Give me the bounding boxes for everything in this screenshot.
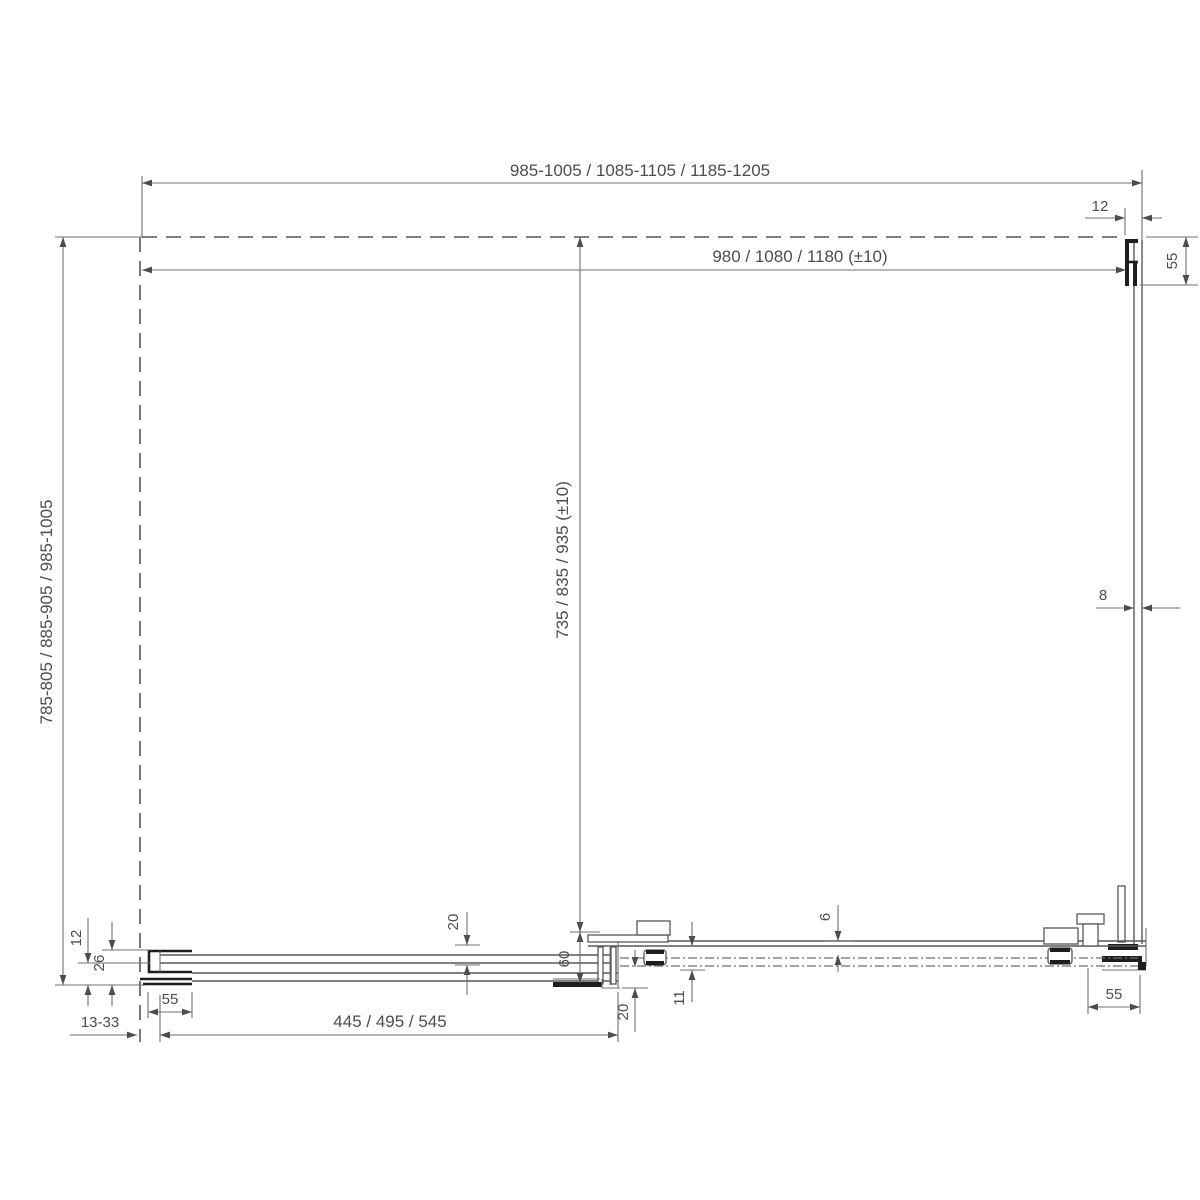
dim-fixed-panel-length: 445 / 495 / 545	[160, 992, 618, 1042]
dim-overall-depth: 785-805 / 885-905 / 985-1005	[37, 237, 63, 985]
shower-enclosure-plan-drawing: 985-1005 / 1085-1105 / 1185-1205 980 / 1…	[0, 0, 1200, 1200]
dim-label: 12	[68, 930, 85, 947]
dim-label: 985-1005 / 1085-1105 / 1185-1205	[510, 161, 770, 180]
dim-label: 12	[1092, 198, 1109, 215]
bracket-block	[637, 921, 670, 935]
dim-endcap-20: 20	[615, 950, 648, 1032]
dim-rail-gap-11: 11	[671, 922, 705, 1006]
dim-bottom-left-55: 55	[148, 991, 192, 1018]
dim-label: 55	[162, 991, 179, 1008]
dim-label: 980 / 1080 / 1180 (±10)	[712, 247, 887, 266]
stopper-stem	[1083, 924, 1098, 946]
dim-glass-width: 980 / 1080 / 1180 (±10)	[142, 247, 1126, 270]
wall-profile-top-right	[1125, 239, 1138, 286]
bottom-rail-section	[55, 914, 1146, 988]
bracket-plate	[588, 935, 668, 942]
dim-door-gap-6: 6	[817, 905, 852, 972]
dim-label: 8	[1099, 587, 1107, 604]
dimensions: 985-1005 / 1085-1105 / 1185-1205 980 / 1…	[37, 161, 1198, 1042]
dim-glass-thickness: 8	[1096, 587, 1180, 608]
right-fixed-panel	[1102, 239, 1146, 970]
bracket-post	[611, 947, 616, 984]
dim-overall-width: 985-1005 / 1085-1105 / 1185-1205	[142, 161, 1142, 183]
dim-label: 20	[445, 914, 462, 931]
dim-bottom-left-12: 12	[68, 918, 150, 1006]
panel-clamp-plate	[1118, 886, 1125, 942]
wall-outline	[55, 170, 1142, 1042]
dim-label: 13-33	[81, 1014, 119, 1031]
dim-label: 11	[671, 990, 688, 1006]
bracket-block	[1044, 928, 1078, 944]
dim-label: 55	[1106, 986, 1123, 1003]
dim-panel-offset-20: 20	[445, 912, 480, 995]
drawing-page: 985-1005 / 1085-1105 / 1185-1205 980 / 1…	[0, 0, 1200, 1200]
dim-label: 55	[1164, 253, 1181, 270]
dim-label: 20	[615, 1004, 632, 1021]
roller-bracket-right	[1044, 914, 1104, 964]
dim-label: 445 / 495 / 545	[333, 1012, 446, 1031]
dim-label: 735 / 835 / 935 (±10)	[553, 481, 572, 639]
dim-top-right-12: 12	[1085, 198, 1162, 235]
dim-label: 6	[817, 913, 834, 921]
stopper-cap	[1077, 914, 1104, 924]
dim-label: 785-805 / 885-905 / 985-1005	[37, 500, 56, 725]
dim-bottom-right-55: 55	[1088, 968, 1140, 1014]
dim-bottom-left-26: 26	[91, 922, 150, 1006]
threshold-piece	[553, 982, 602, 987]
dim-label: 26	[91, 955, 108, 972]
dim-inner-depth: 735 / 835 / 935 (±10)	[553, 237, 580, 932]
dim-top-right-55: 55	[1140, 237, 1198, 285]
dim-label: 60	[556, 951, 573, 968]
